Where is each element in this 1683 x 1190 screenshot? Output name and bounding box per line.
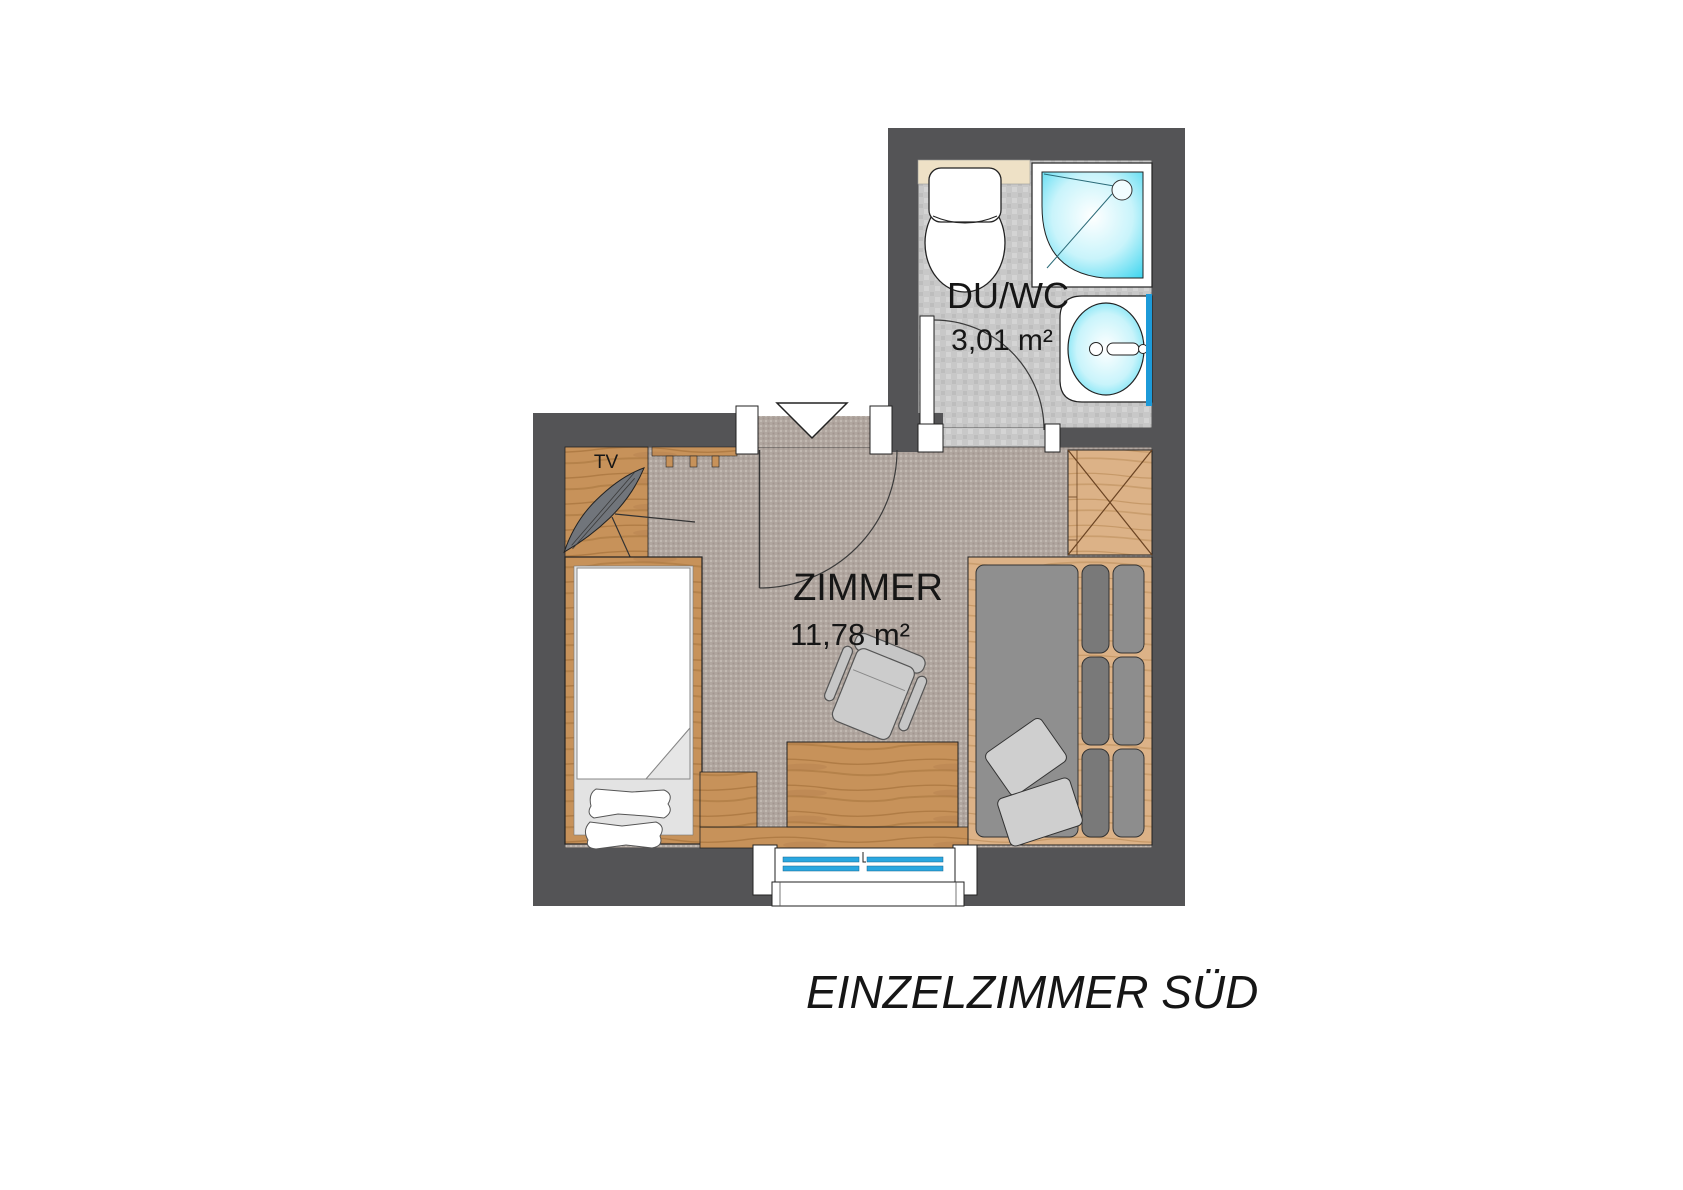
coat-hook [690, 456, 697, 467]
window-sill-exterior [772, 882, 964, 906]
bed [565, 557, 702, 849]
floor-plan-drawing: DU/WC 3,01 m² ZIMMER 11,78 m² TV EINZELZ… [0, 0, 1683, 1190]
toilet-lid [929, 168, 1001, 222]
bed-pillow [585, 822, 662, 849]
coat-rack-rail [652, 447, 737, 456]
wall-left [533, 413, 565, 906]
window [772, 848, 964, 906]
room-label-bedroom: ZIMMER [793, 567, 943, 609]
shower-head [1112, 180, 1132, 200]
sofa-backrest-segment [1082, 565, 1109, 653]
bathroom-door-threshold [943, 428, 1045, 448]
wall-right [1152, 128, 1185, 906]
wall-bathroom-top [888, 128, 1185, 160]
entry-jamb-right [870, 406, 892, 454]
wall-bathroom-bottom [1060, 428, 1152, 447]
wall-bottom-right [955, 848, 1185, 906]
sofa-backrest-segment [1113, 565, 1144, 653]
plan-title: EINZELZIMMER SÜD [806, 966, 1258, 1018]
wall-bathroom-left [888, 128, 918, 430]
window-bench [700, 827, 968, 848]
coat-hook [666, 456, 673, 467]
desk [787, 742, 958, 827]
bathroom-jamb-right [1045, 424, 1060, 452]
toilet [925, 168, 1005, 292]
area-label-bathroom: 3,01 m² [951, 324, 1053, 357]
coat-hook [712, 456, 719, 467]
window-glazing-bar [867, 866, 943, 871]
mirror [1146, 294, 1152, 406]
wall-bottom-left [533, 848, 778, 906]
washbasin [1060, 294, 1152, 406]
floor-plan-canvas: DU/WC 3,01 m² ZIMMER 11,78 m² TV EINZELZ… [0, 0, 1683, 1190]
room-label-bathroom: DU/WC [947, 275, 1069, 316]
entry-jamb-left [736, 406, 758, 454]
faucet-lever [1107, 343, 1139, 355]
bathroom-door-leaf [920, 316, 934, 428]
sofa-backrest [1082, 565, 1144, 837]
sofa-backrest-segment [1113, 749, 1144, 837]
shower [1032, 163, 1152, 287]
faucet-base [1090, 343, 1103, 356]
wardrobe [1068, 450, 1152, 555]
bed-pillow [589, 789, 670, 818]
sofa-backrest-segment [1113, 657, 1144, 745]
bathroom-jamb-left [918, 424, 943, 452]
window-glazing-bar [783, 857, 859, 862]
nightstand [700, 772, 757, 827]
tv-label: TV [594, 452, 619, 473]
window-frame [775, 848, 955, 882]
sofa-backrest-segment [1082, 657, 1109, 745]
window-glazing-bar [867, 857, 943, 862]
wall-room-top [533, 413, 758, 447]
area-label-bedroom: 11,78 m² [790, 617, 910, 652]
sofa-backrest-segment [1082, 749, 1109, 837]
sofa [968, 557, 1152, 848]
window-glazing-bar [783, 866, 859, 871]
